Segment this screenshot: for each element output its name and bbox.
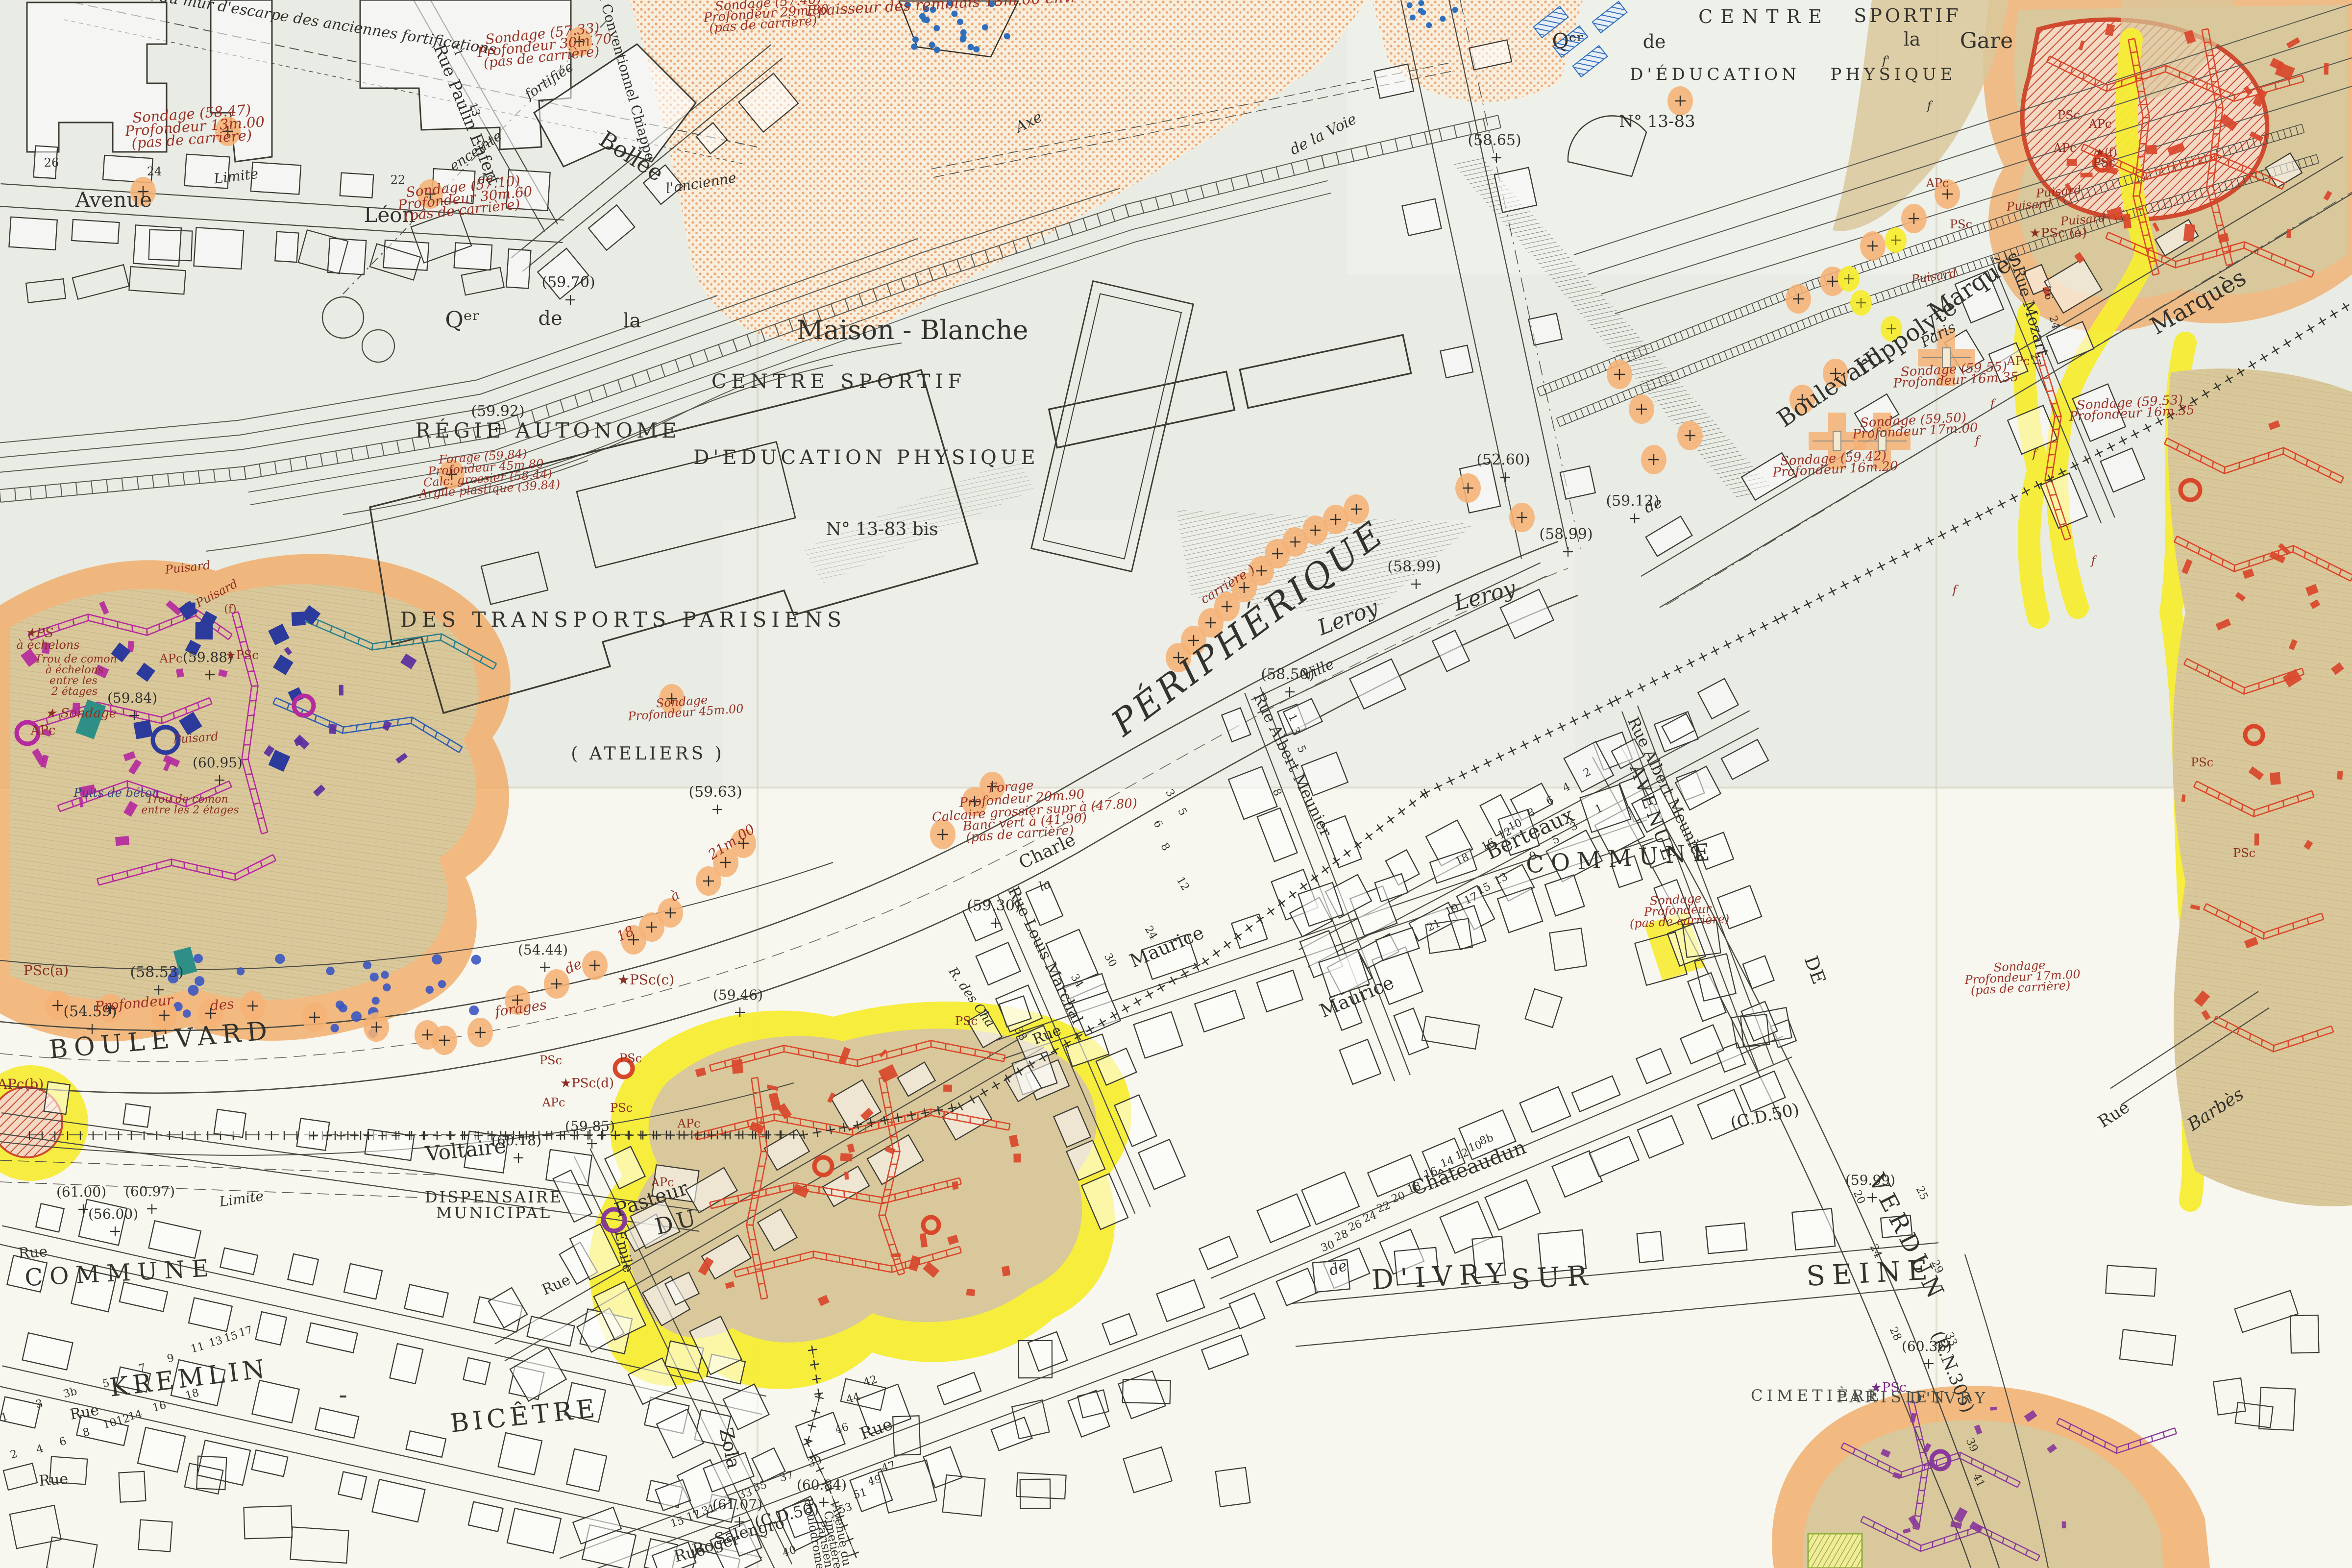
map-label: DES TRANSPORTS PARISIENS	[400, 608, 846, 632]
map-label: (52.60)	[1476, 451, 1530, 468]
map-label: APc	[651, 1176, 674, 1189]
sondage-marker	[1607, 360, 1632, 389]
map-label: ★PSc(c)	[617, 972, 674, 988]
map-label: 26	[44, 156, 59, 170]
map-label: CENTRE	[1698, 6, 1830, 27]
map-label: APc	[2088, 117, 2112, 131]
map-label: 24	[147, 165, 162, 178]
map-label: APc	[159, 652, 183, 665]
map-label: PHYSIQUE	[1830, 65, 1956, 84]
map-label: ★ Sondage	[45, 706, 117, 721]
map-label: (f)	[224, 603, 236, 615]
map-label: des	[209, 996, 235, 1014]
map-label: APc(b)	[0, 1076, 44, 1092]
map-label: N° 13-83 bis	[826, 519, 938, 539]
map-label: MUNICIPAL	[436, 1203, 552, 1222]
map-label: D'EDUCATION PHYSIQUE	[693, 446, 1039, 469]
map-label: (60.84)	[797, 1477, 847, 1493]
sondage-marker-yellow	[1838, 266, 1860, 292]
map-label: PSc	[1950, 218, 1972, 231]
map-label: Qᵉʳ	[1552, 29, 1584, 53]
sondage-marker	[1455, 473, 1481, 503]
map-label: f'	[1881, 54, 1889, 68]
sondage-marker	[1786, 284, 1811, 314]
map-label: Qᵉʳ	[445, 306, 480, 333]
map-label: (58.99)	[1539, 526, 1592, 543]
map-label: (60.97)	[125, 1183, 175, 1200]
sondage-marker	[1509, 503, 1535, 532]
map-label: Gare	[1960, 28, 2013, 53]
map-label: Rue	[18, 1243, 48, 1262]
map-label: (61.07)	[712, 1496, 762, 1513]
map-label: (58.65)	[1468, 132, 1521, 149]
map-label: (58.99)	[1387, 558, 1441, 575]
sondage-marker	[658, 898, 683, 928]
map-label: ★PSc	[225, 648, 259, 662]
sondage-marker	[1629, 394, 1654, 424]
map-label: (60.95)	[193, 755, 243, 771]
map-sheet: Emplacement du mur d'escarpe des ancienn…	[0, 0, 2352, 1568]
map-label: (58.53)	[130, 964, 183, 981]
sondage-marker	[1677, 421, 1703, 450]
map-label: PSc	[2058, 108, 2080, 122]
map-label: APc	[2007, 354, 2030, 368]
map-label: D'ÉDUCATION	[1630, 64, 1800, 84]
map-label: PSc(a)	[24, 962, 69, 979]
map-label: (59.12)	[1606, 492, 1659, 510]
map-label: Rue	[38, 1470, 69, 1490]
map-label: ★PSc (e)	[2029, 226, 2086, 241]
map-label: à échelons	[16, 638, 79, 652]
map-label: PSc	[2093, 156, 2115, 170]
map-label: ( ATELIERS )	[571, 744, 724, 764]
map-label: APc	[30, 723, 56, 738]
map-label: (59.92)	[471, 403, 524, 420]
map-label: RÉGIE AUTONOME	[415, 418, 680, 442]
map-label: ★PSc(d)	[560, 1076, 614, 1091]
map-label: Maison - Blanche	[796, 315, 1028, 345]
map-label: (60.36)	[1902, 1338, 1952, 1354]
sondage-marker	[1860, 231, 1886, 261]
map-label: APc	[1926, 176, 1949, 190]
map-label: Avenue	[75, 188, 152, 212]
map-label: APc	[2053, 141, 2077, 155]
map-label: (59.63)	[688, 784, 742, 801]
sondage-marker	[1901, 204, 1927, 233]
sondage-marker	[1641, 445, 1666, 474]
sondage-marker	[582, 951, 608, 980]
sondage-marker	[467, 1018, 493, 1047]
map-label: (61.00)	[56, 1184, 106, 1200]
map-label: de	[538, 307, 562, 330]
map-canvas: Emplacement du mur d'escarpe des ancienn…	[0, 0, 2352, 1568]
map-label: de	[1643, 31, 1666, 52]
map-label: (59.85)	[565, 1118, 615, 1134]
map-label: APc	[677, 1117, 701, 1130]
sondage-marker-yellow	[1885, 227, 1907, 253]
map-label: D'IVRY	[1910, 1389, 1989, 1407]
map-label: N° 13-83	[1619, 112, 1695, 131]
map-label: PSc	[2233, 846, 2255, 860]
map-label: ★PSc	[1870, 1380, 1906, 1395]
map-label: PSc	[610, 1101, 633, 1115]
map-label: SUR	[1511, 1260, 1595, 1296]
map-label: PSc	[2191, 756, 2213, 769]
sondage-marker-yellow	[1850, 290, 1872, 316]
map-label: SEINE	[1806, 1254, 1935, 1293]
map-label: Puits de béton	[73, 786, 159, 800]
map-label: -	[339, 1380, 347, 1410]
sondage-marker	[432, 1026, 457, 1055]
map-label: 2 étages	[51, 686, 98, 698]
map-label: (59.99)	[1845, 1172, 1895, 1188]
map-label: SPORTIF	[1854, 5, 1961, 26]
map-label: (56.00)	[88, 1206, 138, 1222]
map-label: entre les 2 étages	[141, 804, 239, 816]
map-label: la	[1904, 28, 1921, 50]
sondage-marker	[544, 969, 569, 999]
map-label: PSc	[539, 1053, 562, 1067]
map-label: CENTRE SPORTIF	[711, 370, 966, 393]
map-label: PSc	[955, 1014, 978, 1028]
map-label: PSc	[619, 1052, 642, 1065]
map-label: (58.50)	[1261, 666, 1314, 683]
map-label: (59.46)	[713, 987, 763, 1003]
sondage-marker	[302, 1003, 327, 1032]
map-label: (59.70)	[541, 274, 595, 291]
map-label: APc	[542, 1096, 565, 1109]
map-label: 22	[391, 173, 406, 187]
map-label: (54.44)	[518, 942, 568, 958]
sondage-marker	[1667, 86, 1693, 116]
sondage-marker	[364, 1012, 389, 1042]
map-label: (59.84)	[107, 690, 157, 706]
map-label: la	[623, 310, 641, 332]
